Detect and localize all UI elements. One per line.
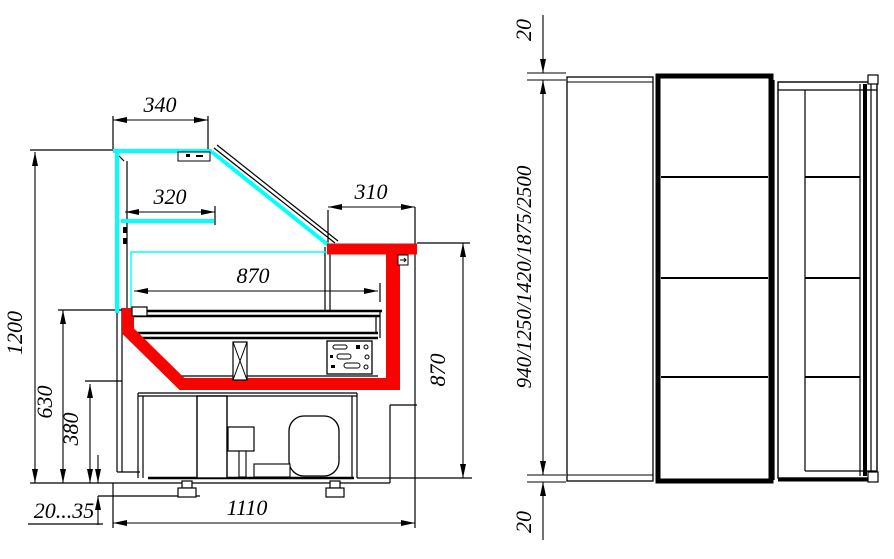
lamp-detail: [186, 154, 190, 157]
dim-label-340: 340: [143, 92, 177, 117]
dim-label-1200: 1200: [2, 311, 27, 355]
compressor: [289, 416, 339, 476]
dim-label-630: 630: [32, 386, 57, 419]
display-deck: [131, 311, 382, 478]
dim-label-310: 310: [354, 179, 388, 204]
glass-clip-2: [123, 238, 127, 244]
dim-label-320: 320: [153, 184, 187, 209]
end-panel: [567, 77, 653, 481]
glass-inner-liner: [131, 252, 327, 310]
corner-block-top: [868, 75, 878, 84]
lamp-housing: [178, 152, 210, 161]
technical-drawing: 340 320 310 870 1110 20...35 1200 630 38…: [0, 0, 894, 559]
side-section-view: 340 320 310 870 1110 20...35 1200 630 38…: [2, 92, 472, 528]
corner-block-bottom: [868, 472, 878, 482]
lamp-detail-2: [196, 155, 203, 157]
deck-end-block: [132, 307, 147, 316]
drawing-canvas: 340 320 310 870 1110 20...35 1200 630 38…: [0, 0, 894, 559]
glass-clip: [123, 227, 127, 233]
machine-compartment: [197, 396, 339, 478]
dim-label-1110: 1110: [227, 495, 268, 520]
dim-label-20-bottom: 20: [511, 511, 536, 533]
dim-label-870-depth: 870: [237, 263, 270, 288]
structure-thin-lines: [28, 116, 472, 528]
control-panel: [327, 341, 372, 374]
right-panel: [778, 82, 877, 478]
box-stand: [239, 451, 246, 477]
dim-label-380: 380: [58, 413, 83, 447]
dim-label-feet: 20...35: [34, 498, 95, 523]
dim-label-lengths: 940/1250/1420/1875/2500: [512, 165, 536, 388]
front-view: 20 940/1250/1420/1875/2500 20: [511, 15, 878, 540]
glass-profile: [113, 151, 332, 313]
dim-label-870-service: 870: [425, 354, 450, 387]
condensate-box: [228, 427, 254, 451]
dim-label-20-top: 20: [511, 19, 536, 41]
air-duct: [197, 396, 227, 478]
x-brace-support: [233, 342, 247, 380]
tray: [254, 464, 290, 477]
